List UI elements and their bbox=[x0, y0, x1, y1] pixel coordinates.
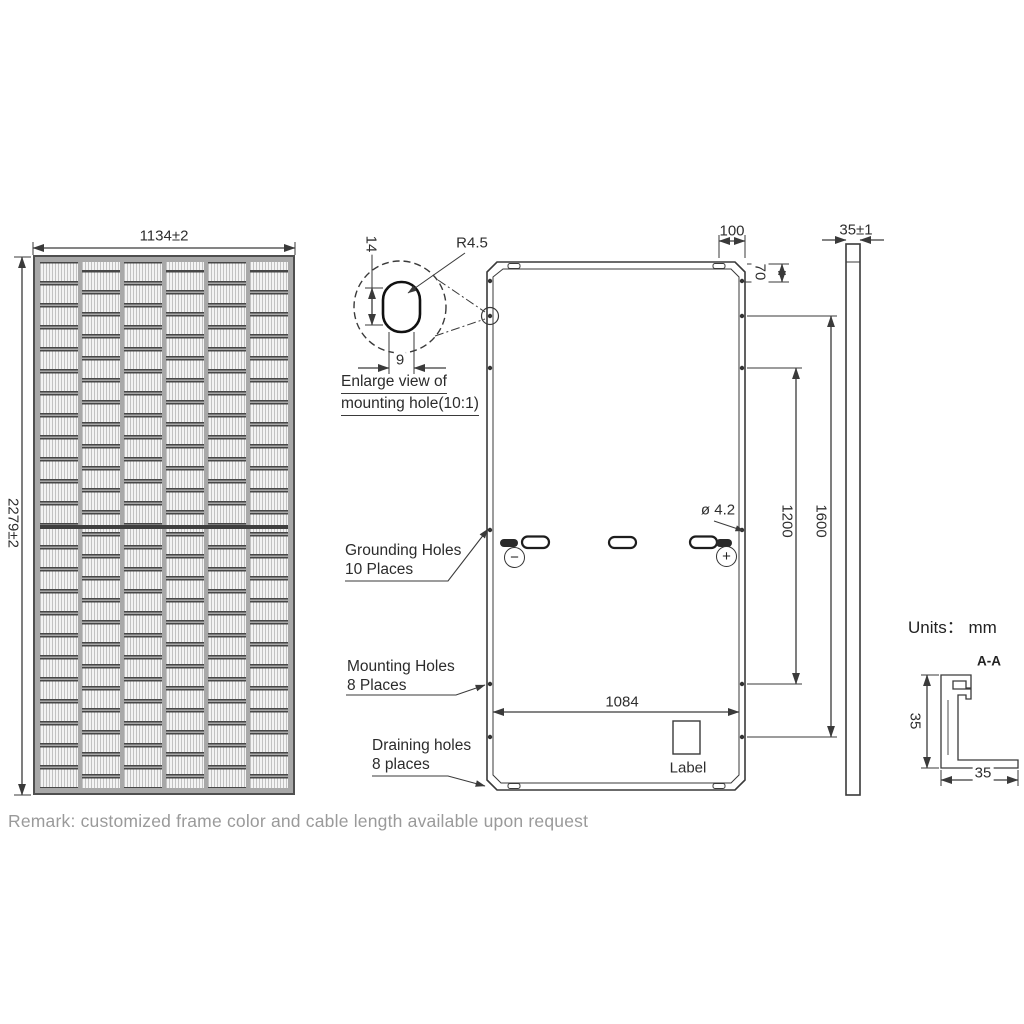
mount-span-outer-dimension: 1600 bbox=[813, 504, 830, 537]
thickness-dimension: 35±1 bbox=[839, 222, 872, 239]
plus-terminal-symbol: + bbox=[716, 546, 737, 567]
enlarge-caption-line2: mounting hole(10:1) bbox=[341, 394, 479, 416]
grounding-note-line1: Grounding Holes bbox=[345, 541, 461, 560]
section-drawing bbox=[921, 675, 1018, 786]
hole-diameter-dimension: ø 4.2 bbox=[701, 502, 735, 519]
top-hole-offset-dimension: 70 bbox=[752, 262, 769, 283]
minus-glyph: − bbox=[510, 550, 519, 565]
grounding-hole-slots bbox=[500, 537, 732, 549]
enlarge-height-dimension: 14 bbox=[363, 234, 380, 255]
rear-view-outline bbox=[482, 262, 746, 790]
units-label: Units： mm bbox=[908, 613, 997, 638]
enlarge-width-dimension: 9 bbox=[394, 352, 406, 369]
section-height-dimension: 35 bbox=[907, 713, 924, 730]
minus-terminal-symbol: − bbox=[504, 547, 525, 568]
mounting-holes-note: Mounting Holes 8 Places bbox=[347, 657, 455, 695]
rear-view-dimension-lines bbox=[493, 235, 837, 737]
enlarge-view-drawing bbox=[354, 253, 485, 374]
enlarge-caption-line1: Enlarge view of bbox=[341, 372, 447, 394]
draining-holes-note: Draining holes 8 places bbox=[372, 736, 471, 774]
mounting-note-line1: Mounting Holes bbox=[347, 657, 455, 676]
section-width-dimension: 35 bbox=[973, 765, 994, 782]
section-label: A-A bbox=[977, 654, 1001, 669]
front-width-dimension: 1134±2 bbox=[140, 228, 189, 245]
half-cut-divider bbox=[40, 525, 288, 529]
grounding-holes-note: Grounding Holes 10 Places bbox=[345, 541, 461, 579]
cell-grid bbox=[40, 262, 288, 788]
draining-note-line2: 8 places bbox=[372, 755, 471, 774]
bottom-width-dimension: 1084 bbox=[605, 694, 638, 711]
solar-panel-drawing-page: 1134±2 2279±2 14 R4.5 9 Enlarge view of … bbox=[0, 0, 1024, 1024]
front-view-panel bbox=[33, 255, 295, 795]
label-text: Label bbox=[670, 760, 707, 777]
front-height-dimension: 2279±2 bbox=[5, 498, 22, 548]
corner-offset-dimension: 100 bbox=[719, 223, 744, 240]
mounting-note-line2: 8 Places bbox=[347, 676, 455, 695]
remark-text: Remark: customized frame color and cable… bbox=[8, 811, 588, 832]
enlarge-radius-label: R4.5 bbox=[456, 235, 488, 252]
enlarge-caption: Enlarge view of mounting hole(10:1) bbox=[341, 372, 479, 416]
plus-glyph: + bbox=[722, 549, 731, 564]
label-box bbox=[673, 721, 700, 754]
mount-span-inner-dimension: 1200 bbox=[779, 504, 796, 537]
draining-note-line1: Draining holes bbox=[372, 736, 471, 755]
grounding-note-line2: 10 Places bbox=[345, 560, 461, 579]
